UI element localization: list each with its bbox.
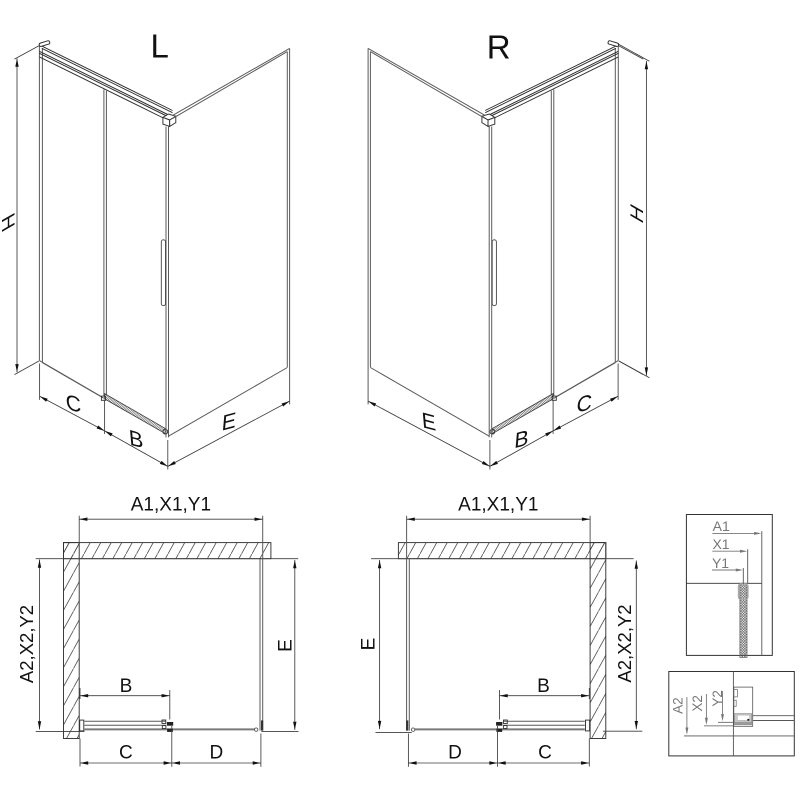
- svg-text:A2,X2,Y2: A2,X2,Y2: [16, 605, 37, 683]
- svg-text:H: H: [0, 209, 18, 236]
- svg-text:X1: X1: [712, 536, 729, 552]
- svg-text:B: B: [513, 425, 529, 454]
- svg-text:B: B: [537, 676, 550, 697]
- svg-text:D: D: [448, 743, 462, 764]
- svg-text:X2: X2: [690, 695, 705, 712]
- svg-text:C: C: [576, 389, 594, 418]
- svg-text:H: H: [627, 200, 647, 227]
- svg-text:D: D: [209, 743, 223, 764]
- svg-text:E: E: [421, 407, 437, 436]
- svg-text:R: R: [487, 28, 511, 65]
- svg-text:L: L: [151, 28, 169, 65]
- svg-text:Y1: Y1: [712, 555, 729, 571]
- svg-text:E: E: [221, 407, 237, 436]
- svg-text:C: C: [65, 389, 83, 418]
- svg-text:A1: A1: [713, 518, 730, 534]
- svg-text:E: E: [276, 639, 297, 652]
- svg-text:A1,X1,Y1: A1,X1,Y1: [131, 495, 211, 516]
- svg-text:B: B: [120, 676, 133, 697]
- svg-text:B: B: [128, 425, 144, 454]
- svg-text:A2: A2: [671, 697, 686, 714]
- svg-text:E: E: [359, 638, 380, 651]
- svg-text:C: C: [538, 743, 552, 764]
- svg-text:A1,X1,Y1: A1,X1,Y1: [458, 495, 538, 516]
- svg-text:A2,X2,Y2: A2,X2,Y2: [614, 604, 635, 682]
- svg-text:C: C: [119, 743, 133, 764]
